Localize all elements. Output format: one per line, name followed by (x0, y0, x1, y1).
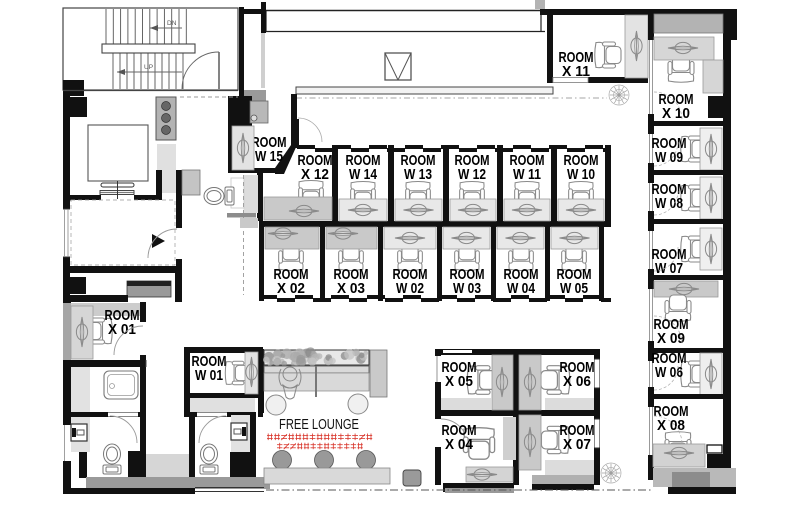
svg-text:X 04: X 04 (445, 436, 474, 453)
svg-text:X 02: X 02 (277, 280, 305, 297)
svg-text:FREE LOUNGE: FREE LOUNGE (279, 417, 359, 433)
svg-text:W 11: W 11 (513, 166, 541, 183)
svg-text:W 02: W 02 (396, 280, 424, 297)
svg-text:W 13: W 13 (404, 166, 432, 183)
svg-text:W 01: W 01 (195, 367, 223, 384)
svg-text:W 04: W 04 (507, 280, 536, 297)
svg-text:X 07: X 07 (563, 436, 591, 453)
svg-text:DN: DN (167, 20, 177, 27)
svg-text:W 14: W 14 (349, 166, 378, 183)
svg-text:X 05: X 05 (445, 373, 473, 390)
svg-text:UP: UP (144, 64, 153, 71)
svg-text:X 12: X 12 (301, 166, 329, 183)
svg-text:W 09: W 09 (655, 149, 683, 166)
svg-text:W 05: W 05 (560, 280, 588, 297)
svg-text:X 11: X 11 (562, 63, 590, 80)
svg-text:W 07: W 07 (655, 260, 683, 277)
svg-text:X 06: X 06 (563, 373, 591, 390)
svg-text:W 12: W 12 (458, 166, 486, 183)
svg-text:X 09: X 09 (657, 330, 685, 347)
svg-text:W 10: W 10 (567, 166, 595, 183)
svg-text:W 06: W 06 (655, 364, 683, 381)
svg-text:W 15: W 15 (255, 148, 283, 165)
svg-text:X 03: X 03 (337, 280, 365, 297)
svg-text:W 03: W 03 (453, 280, 481, 297)
svg-text:X 10: X 10 (662, 105, 690, 122)
